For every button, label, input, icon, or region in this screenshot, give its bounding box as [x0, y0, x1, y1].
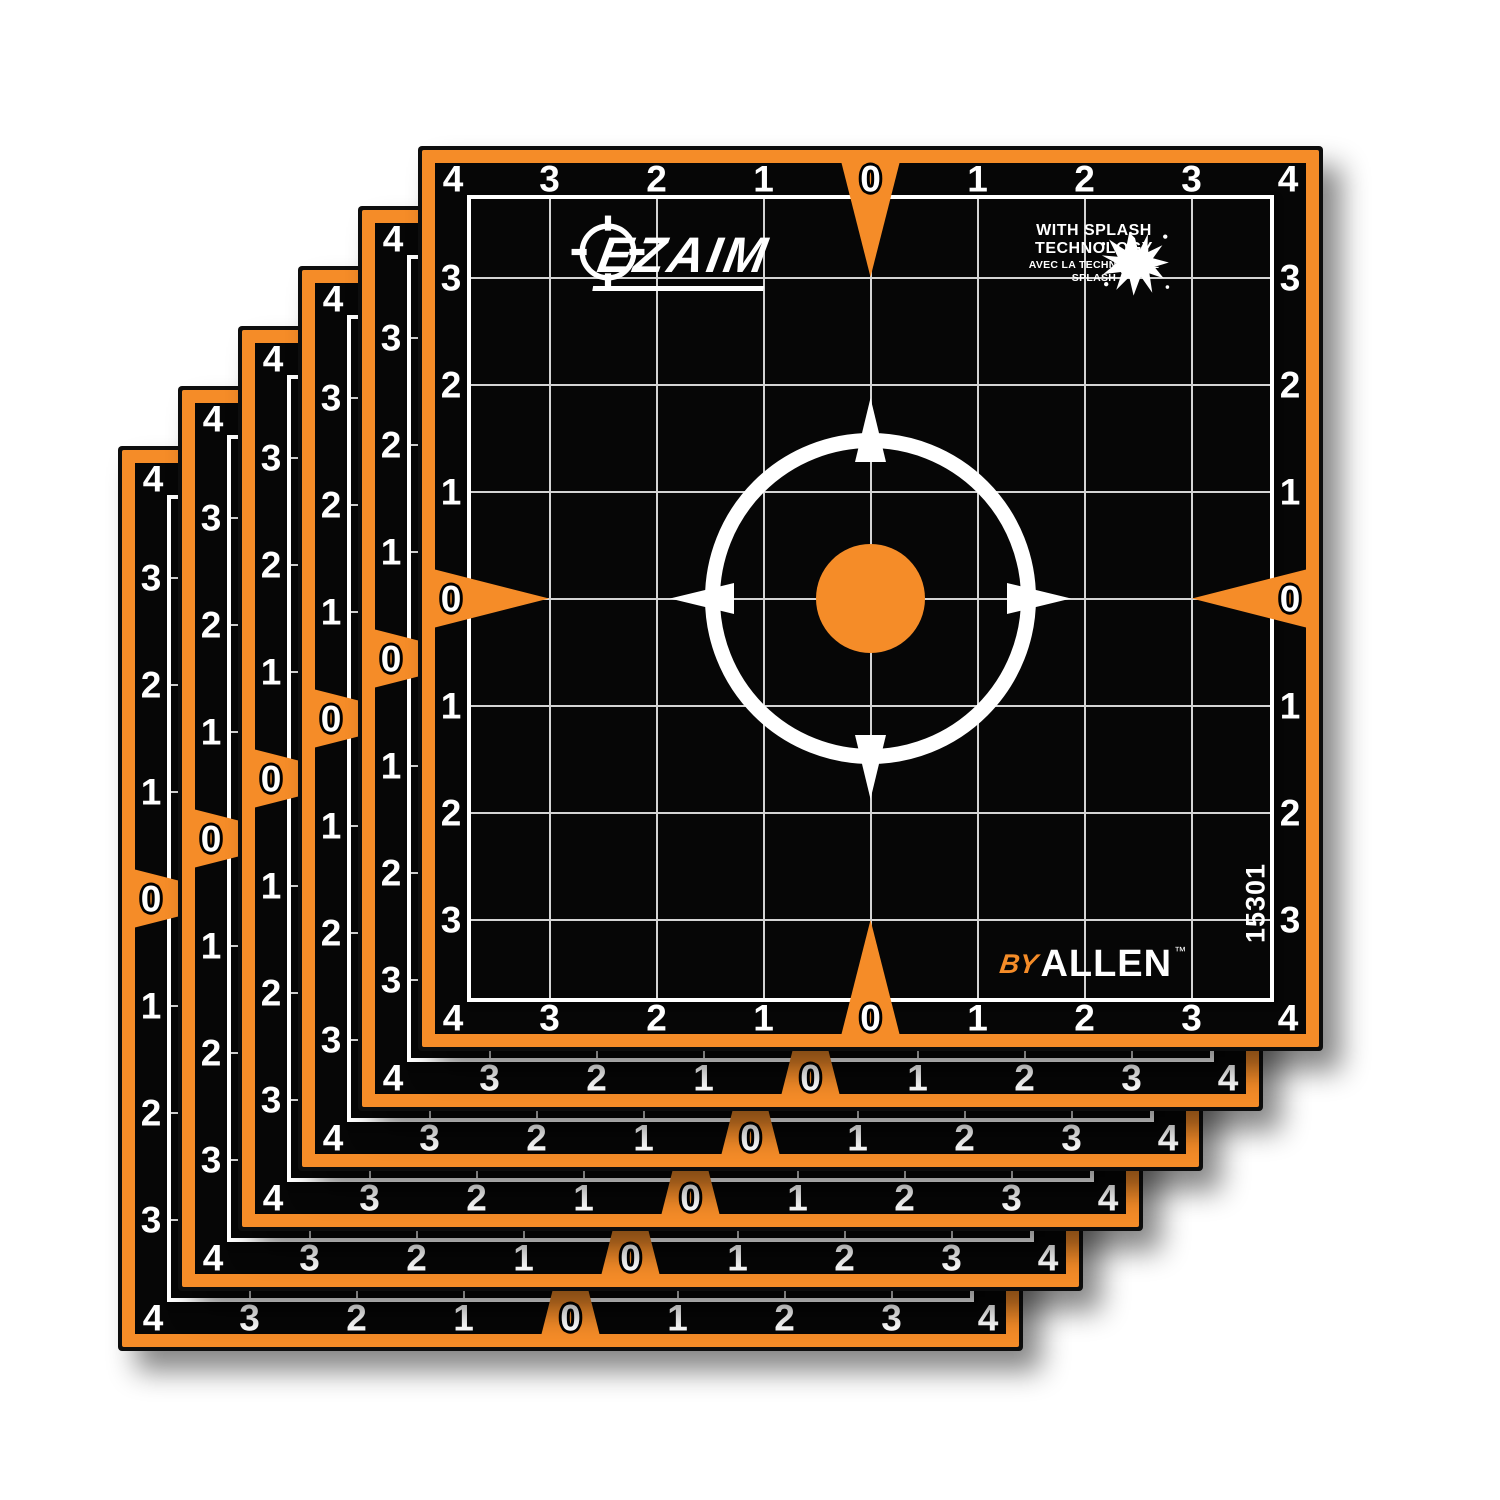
zero-label: 0 — [441, 580, 462, 617]
edge-label: 3 — [1181, 1000, 1202, 1037]
edge-label: 2 — [321, 914, 342, 951]
edge-label: 1 — [201, 927, 222, 964]
product-image-canvas: EZAIM WITH SPLASH TECHNOLOGY AVEC LA TEC… — [0, 0, 1500, 1500]
edge-label: 2 — [346, 1300, 367, 1337]
edge-label: 2 — [321, 486, 342, 523]
edge-label: 2 — [894, 1180, 915, 1217]
edge-label: 2 — [586, 1060, 607, 1097]
edge-label: 2 — [1280, 366, 1301, 403]
edge-label: 3 — [141, 559, 162, 596]
zero-label: 0 — [381, 640, 402, 677]
edge-label: 3 — [239, 1300, 260, 1337]
edge-label: 2 — [141, 1094, 162, 1131]
zero-label: 0 — [321, 700, 342, 737]
edge-label: 1 — [907, 1060, 928, 1097]
edge-label: 1 — [1280, 687, 1301, 724]
edge-label: 1 — [573, 1180, 594, 1217]
edge-label: 4 — [323, 1120, 344, 1157]
edge-label: 3 — [201, 499, 222, 536]
edge-label: 1 — [261, 653, 282, 690]
edge-label: 4 — [443, 161, 464, 198]
edge-label: 4 — [1278, 1000, 1299, 1037]
edge-label: 3 — [419, 1120, 440, 1157]
edge-label: 4 — [383, 1060, 404, 1097]
edge-label: 3 — [441, 259, 462, 296]
edge-label: 4 — [383, 221, 404, 258]
edge-label: 3 — [261, 439, 282, 476]
edge-label: 1 — [513, 1240, 534, 1277]
edge-label: 3 — [299, 1240, 320, 1277]
zero-label: 0 — [201, 820, 222, 857]
edge-label: 1 — [633, 1120, 654, 1157]
edge-label: 2 — [201, 1034, 222, 1071]
edge-label: 1 — [1280, 473, 1301, 510]
edge-label: 4 — [1158, 1120, 1179, 1157]
edge-label: 2 — [1014, 1060, 1035, 1097]
edge-label: 4 — [143, 461, 164, 498]
edge-label: 2 — [261, 974, 282, 1011]
edge-label: 2 — [954, 1120, 975, 1157]
edge-labels: 44333322221111000011112222333344 — [418, 146, 1323, 1051]
zero-label: 0 — [860, 161, 881, 198]
edge-label: 1 — [381, 747, 402, 784]
edge-label: 1 — [787, 1180, 808, 1217]
edge-label: 1 — [441, 687, 462, 724]
edge-label: 2 — [834, 1240, 855, 1277]
edge-label: 4 — [1278, 161, 1299, 198]
edge-label: 2 — [526, 1120, 547, 1157]
edge-label: 3 — [201, 1141, 222, 1178]
edge-label: 3 — [1121, 1060, 1142, 1097]
edge-label: 2 — [441, 366, 462, 403]
edge-label: 1 — [381, 533, 402, 570]
edge-label: 1 — [847, 1120, 868, 1157]
edge-label: 2 — [646, 1000, 667, 1037]
edge-label: 1 — [753, 1000, 774, 1037]
edge-label: 1 — [261, 867, 282, 904]
edge-label: 3 — [321, 379, 342, 416]
edge-label: 2 — [201, 606, 222, 643]
edge-label: 3 — [1280, 901, 1301, 938]
edge-label: 3 — [1280, 259, 1301, 296]
edge-label: 3 — [441, 901, 462, 938]
edge-label: 4 — [1218, 1060, 1239, 1097]
edge-label: 3 — [539, 1000, 560, 1037]
edge-label: 2 — [466, 1180, 487, 1217]
edge-label: 1 — [141, 773, 162, 810]
edge-label: 3 — [1001, 1180, 1022, 1217]
zero-label: 0 — [560, 1300, 581, 1337]
zero-label: 0 — [800, 1060, 821, 1097]
edge-label: 3 — [321, 1021, 342, 1058]
edge-label: 4 — [443, 1000, 464, 1037]
edge-label: 3 — [381, 961, 402, 998]
zero-label: 0 — [620, 1240, 641, 1277]
edge-label: 3 — [539, 161, 560, 198]
edge-label: 1 — [967, 161, 988, 198]
edge-label: 3 — [881, 1300, 902, 1337]
edge-label: 3 — [261, 1081, 282, 1118]
edge-label: 2 — [1074, 1000, 1095, 1037]
edge-label: 4 — [323, 281, 344, 318]
edge-label: 1 — [141, 987, 162, 1024]
edge-label: 1 — [727, 1240, 748, 1277]
edge-label: 1 — [201, 713, 222, 750]
edge-label: 1 — [453, 1300, 474, 1337]
edge-label: 4 — [203, 401, 224, 438]
edge-label: 4 — [203, 1240, 224, 1277]
edge-label: 2 — [406, 1240, 427, 1277]
zero-label: 0 — [680, 1180, 701, 1217]
edge-label: 3 — [381, 319, 402, 356]
edge-label: 4 — [1098, 1180, 1119, 1217]
edge-label: 2 — [261, 546, 282, 583]
edge-label: 1 — [667, 1300, 688, 1337]
edge-label: 2 — [381, 426, 402, 463]
edge-label: 3 — [941, 1240, 962, 1277]
edge-label: 3 — [479, 1060, 500, 1097]
edge-label: 3 — [1181, 161, 1202, 198]
edge-label: 4 — [1038, 1240, 1059, 1277]
edge-label: 2 — [1280, 794, 1301, 831]
edge-label: 3 — [1061, 1120, 1082, 1157]
edge-label: 2 — [646, 161, 667, 198]
edge-label: 4 — [143, 1300, 164, 1337]
edge-label: 4 — [263, 341, 284, 378]
edge-label: 2 — [1074, 161, 1095, 198]
zero-label: 0 — [860, 1000, 881, 1037]
edge-label: 1 — [321, 807, 342, 844]
edge-label: 1 — [441, 473, 462, 510]
edge-label: 2 — [441, 794, 462, 831]
edge-label: 2 — [381, 854, 402, 891]
edge-label: 2 — [774, 1300, 795, 1337]
edge-label: 1 — [967, 1000, 988, 1037]
edge-label: 1 — [321, 593, 342, 630]
zero-label: 0 — [141, 880, 162, 917]
edge-label: 2 — [141, 666, 162, 703]
edge-label: 4 — [978, 1300, 999, 1337]
edge-label: 1 — [693, 1060, 714, 1097]
edge-label: 3 — [141, 1201, 162, 1238]
edge-label: 1 — [753, 161, 774, 198]
zero-label: 0 — [740, 1120, 761, 1157]
zero-label: 0 — [261, 760, 282, 797]
zero-label: 0 — [1280, 580, 1301, 617]
target-sheet: EZAIM WITH SPLASH TECHNOLOGY AVEC LA TEC… — [418, 146, 1323, 1051]
edge-label: 3 — [359, 1180, 380, 1217]
edge-label: 4 — [263, 1180, 284, 1217]
